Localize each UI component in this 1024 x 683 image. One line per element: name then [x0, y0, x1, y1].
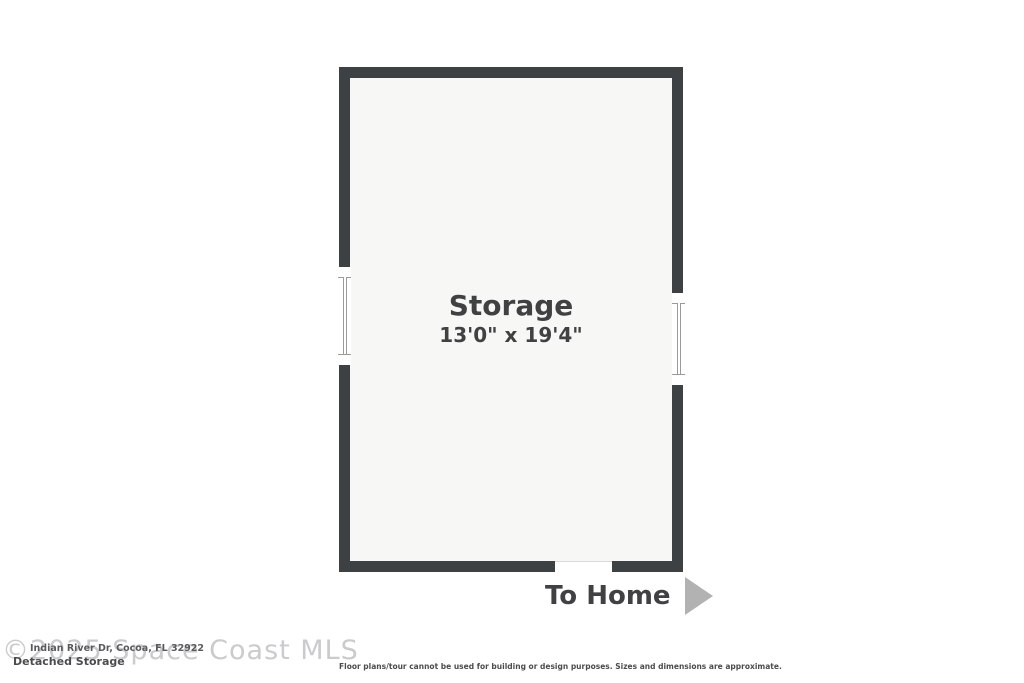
window-symbol-left	[338, 267, 351, 365]
floorplan-page: Storage 13'0" x 19'4" To Home ©2025 Spac…	[0, 0, 1024, 683]
disclaimer-text: Floor plans/tour cannot be used for buil…	[339, 662, 683, 671]
door-opening	[555, 561, 612, 572]
window-glass-line	[343, 277, 347, 355]
right-arrow-icon	[685, 577, 713, 615]
property-address: Indian River Dr, Cocoa, FL 32922	[30, 643, 204, 654]
to-home-indicator: To Home	[545, 577, 713, 615]
plan-title: Detached Storage	[13, 655, 125, 668]
to-home-label: To Home	[545, 581, 671, 611]
window-sill-bottom	[338, 354, 351, 355]
room-label: Storage 13'0" x 19'4"	[350, 291, 672, 348]
window-symbol-right	[672, 293, 685, 385]
room-dimensions: 13'0" x 19'4"	[350, 322, 672, 348]
storage-room-outline: Storage 13'0" x 19'4"	[339, 67, 683, 572]
window-sill-bottom	[672, 374, 685, 375]
room-name: Storage	[350, 291, 672, 322]
window-glass-line	[677, 303, 681, 375]
